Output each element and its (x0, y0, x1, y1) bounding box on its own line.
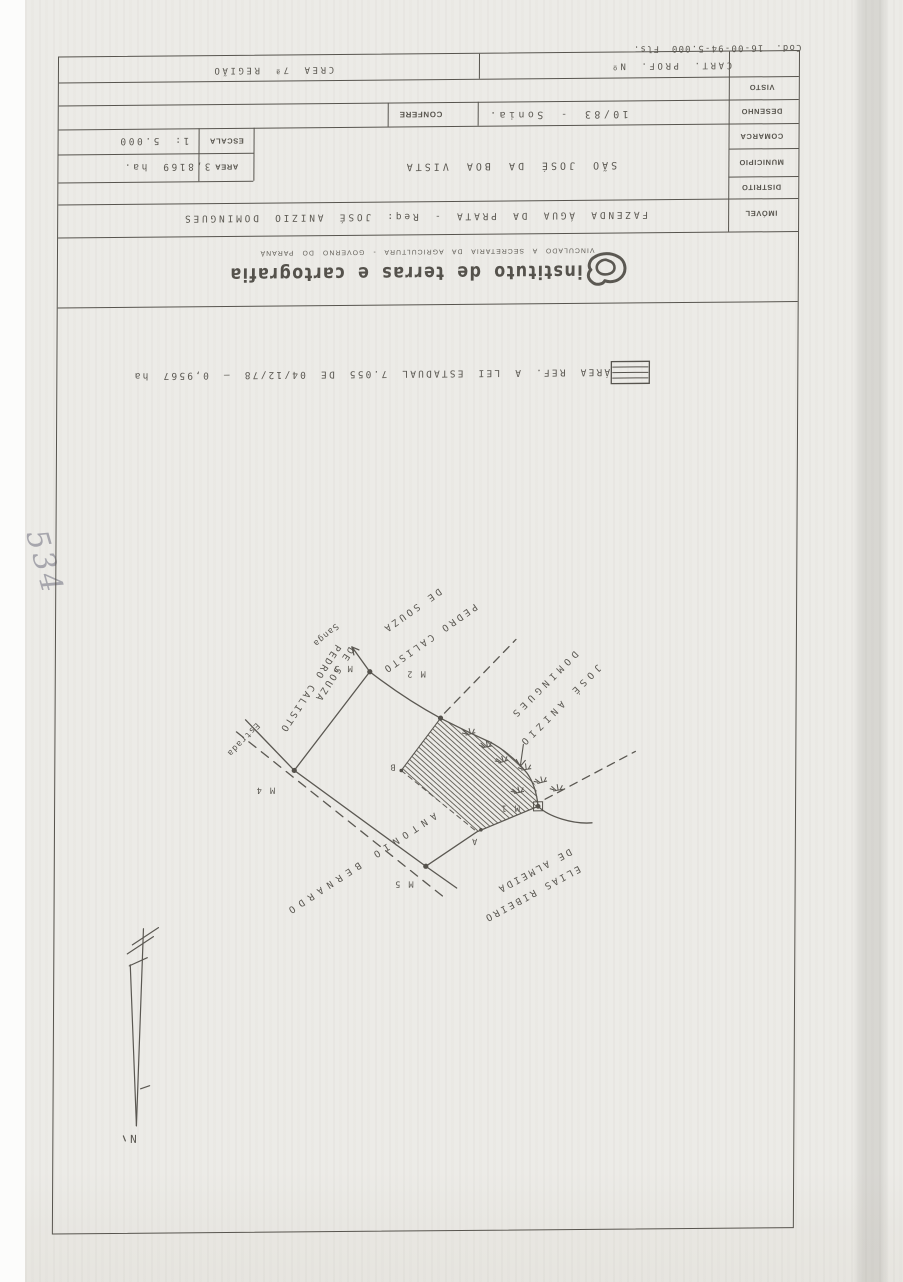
neighbor-jose-line2: DOMINGUES (507, 648, 580, 721)
legend: ÁREA REF. A LEI ESTADUAL 7.055 DE 04/12/… (132, 361, 649, 388)
legend-swatch-hatch (612, 367, 648, 378)
neighbor-pedro-upper-line1: PEDRO CALISTO (380, 601, 479, 676)
north-label: N (130, 1132, 137, 1145)
paper-sheet: 534 Cod. 16-00-94-5.000 Fls. CART. PROF.… (25, 0, 903, 1282)
marker-m1-label: M 1 (500, 802, 520, 812)
legend-caption: ÁREA REF. A LEI ESTADUAL 7.055 DE 04/12/… (132, 366, 610, 382)
marker-m2-label: M 2 (406, 668, 426, 678)
division-dashed-upper (445, 639, 516, 713)
document-frame: Cod. 16-00-94-5.000 Fls. CART. PROF. Nº … (52, 50, 800, 1235)
neighbor-antonio: ANTONIO BERNARDO (282, 810, 439, 918)
marker-m4-label: M 4 (255, 785, 275, 795)
division-dashed-lower (545, 751, 635, 799)
neighbor-pedro-upper-line2: DE SOUZA (380, 586, 444, 635)
marker-a-label: A (471, 836, 478, 846)
marker-m5-label: M 5 (394, 878, 414, 888)
estrada-label: Estrada (224, 720, 261, 758)
marker-b-label: B (389, 762, 396, 772)
survey-map: M 3 M 2 M 1 M 4 M 5 A B Sanga Estrada DE… (53, 51, 799, 1234)
north-arrow-icon (123, 928, 158, 1141)
scanned-survey-document: { "page": { "handwritten_number": "534" … (0, 0, 903, 1282)
